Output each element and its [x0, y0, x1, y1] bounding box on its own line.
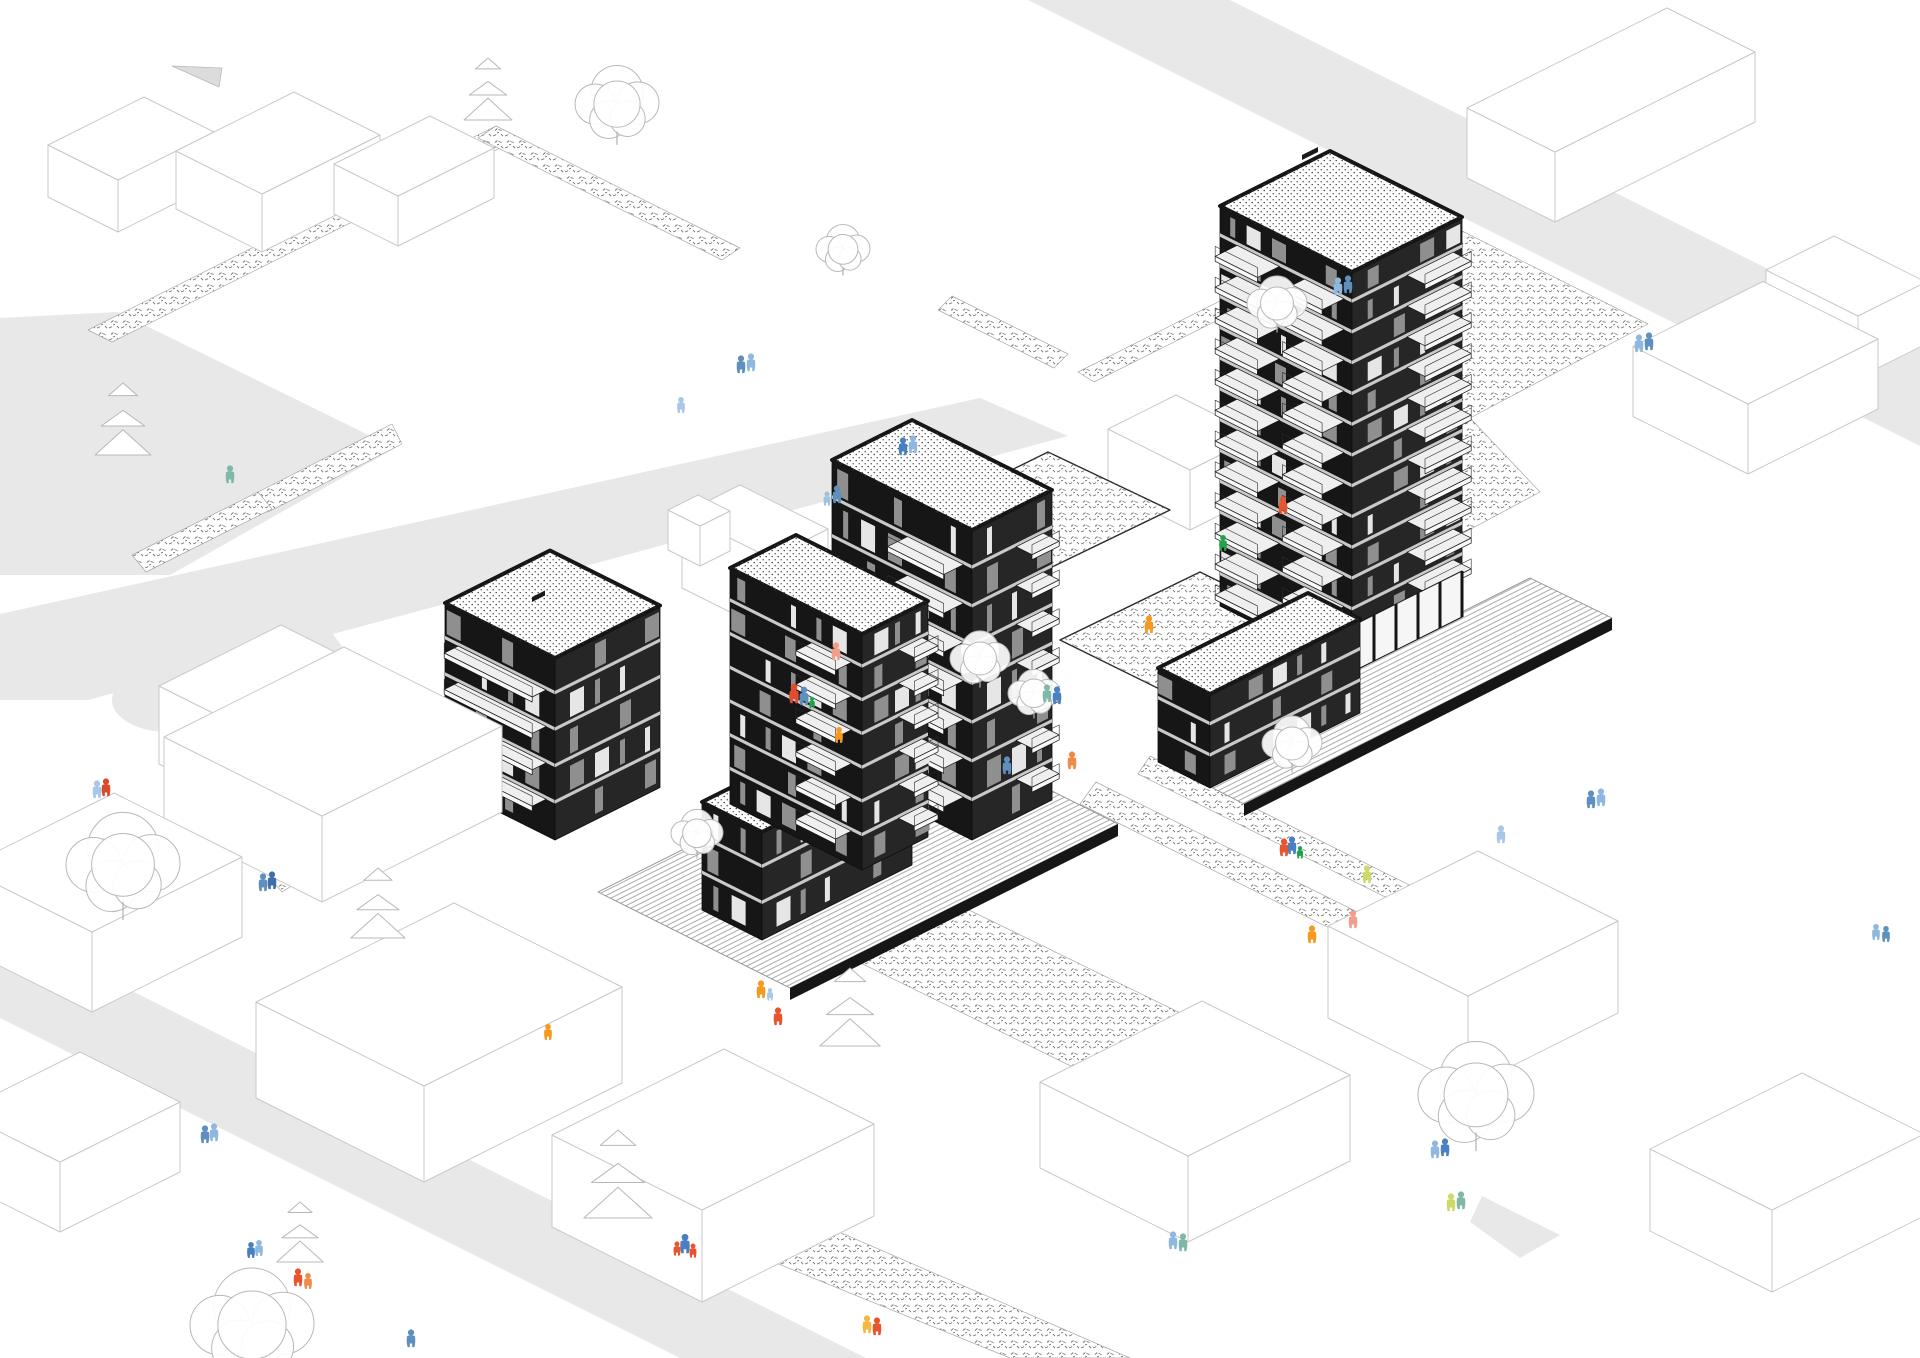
person-figure: [1179, 1233, 1188, 1251]
person-figure: [1068, 751, 1077, 769]
road-fragment-top-left: [172, 66, 222, 87]
tree-pine: [464, 58, 512, 120]
person-figure: [677, 397, 685, 413]
person-figure: [93, 780, 102, 798]
hedge-strip: [938, 296, 1068, 368]
scene-root: [0, 0, 1920, 1358]
tree-canopy: [575, 65, 659, 144]
person-figure: [1882, 926, 1890, 942]
person-figure: [255, 1240, 263, 1256]
person-figure: [294, 1268, 303, 1286]
person-figure: [824, 492, 831, 506]
person-figure: [1308, 925, 1317, 943]
tree-pine: [277, 1202, 324, 1262]
person-figure: [1587, 790, 1596, 808]
person-figure: [737, 355, 746, 373]
person-figure: [304, 1273, 312, 1289]
person-figure: [259, 873, 268, 891]
person-figure: [210, 1123, 219, 1141]
person-figure: [1597, 788, 1606, 806]
building-main-tower: [1215, 147, 1471, 672]
person-figure: [268, 871, 277, 889]
person-figure: [863, 1315, 872, 1333]
person-figure: [1441, 1138, 1450, 1156]
person-figure: [201, 1125, 210, 1143]
person-figure: [1447, 1193, 1456, 1211]
person-figure: [873, 1317, 882, 1335]
person-figure: [757, 980, 766, 998]
road-wedge-bottom-right: [1470, 1196, 1560, 1258]
person-figure: [747, 353, 756, 371]
person-figure: [102, 778, 111, 796]
person-figure: [1280, 838, 1289, 856]
person-figure: [1457, 1191, 1466, 1209]
person-figure: [1497, 825, 1506, 843]
person-figure: [1431, 1140, 1440, 1158]
hedge-strip: [478, 126, 740, 260]
axonometric-site-drawing: [0, 0, 1920, 1358]
person-figure: [774, 1007, 783, 1025]
person-figure: [1169, 1231, 1178, 1249]
tree-canopy: [816, 225, 870, 276]
person-figure: [407, 1329, 416, 1347]
context-building: [1650, 1073, 1920, 1292]
person-figure: [1872, 924, 1880, 940]
person-figure: [1297, 846, 1303, 858]
person-figure: [767, 988, 773, 1000]
site-illustration-page: [0, 0, 1920, 1358]
person-figure: [247, 1242, 255, 1258]
context-building: [1467, 8, 1755, 222]
person-figure: [1288, 836, 1297, 854]
